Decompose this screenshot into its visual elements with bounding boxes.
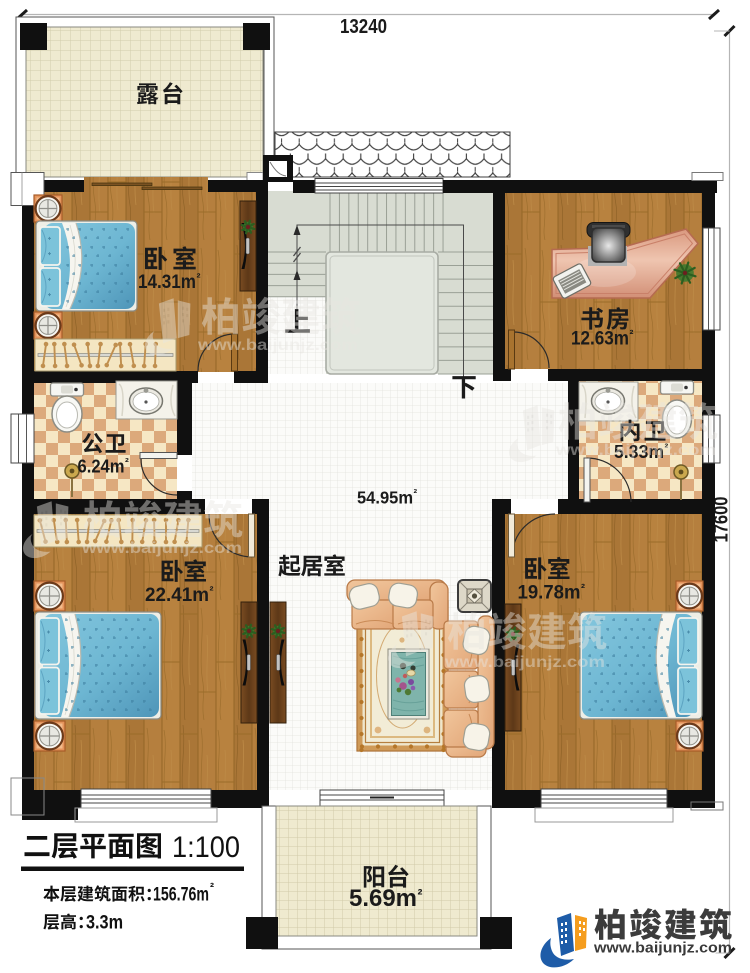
- svg-text:14.31m: 14.31m: [138, 271, 196, 293]
- svg-text:²: ²: [581, 581, 585, 595]
- svg-text:www.baijunjz.com: www.baijunjz.com: [197, 337, 358, 354]
- svg-text:²: ²: [418, 888, 423, 904]
- svg-text:²: ²: [125, 457, 129, 469]
- svg-text:www.baijunjz.com: www.baijunjz.com: [555, 442, 716, 459]
- svg-text:13240: 13240: [340, 15, 387, 38]
- svg-text:²: ²: [630, 328, 634, 341]
- svg-text:²: ²: [414, 488, 418, 500]
- svg-text:12.63m: 12.63m: [571, 329, 629, 350]
- svg-text:6.24m: 6.24m: [78, 456, 125, 477]
- svg-text:²: ²: [197, 271, 201, 285]
- svg-text:5.69m: 5.69m: [349, 885, 417, 912]
- svg-text:www.baijunjz.com: www.baijunjz.com: [81, 540, 242, 557]
- svg-text:²: ²: [210, 880, 214, 894]
- svg-text:3.3m: 3.3m: [86, 913, 123, 934]
- svg-text:www.baijunjz.com: www.baijunjz.com: [593, 940, 732, 957]
- svg-text:1:100: 1:100: [172, 831, 240, 864]
- svg-text:156.76m: 156.76m: [153, 885, 209, 906]
- svg-text:19.78m: 19.78m: [518, 582, 581, 604]
- svg-text:54.95m: 54.95m: [357, 488, 413, 508]
- svg-text:²: ²: [210, 584, 214, 598]
- svg-text:22.41m: 22.41m: [145, 584, 209, 606]
- svg-text:www.baijunjz.com: www.baijunjz.com: [444, 654, 605, 671]
